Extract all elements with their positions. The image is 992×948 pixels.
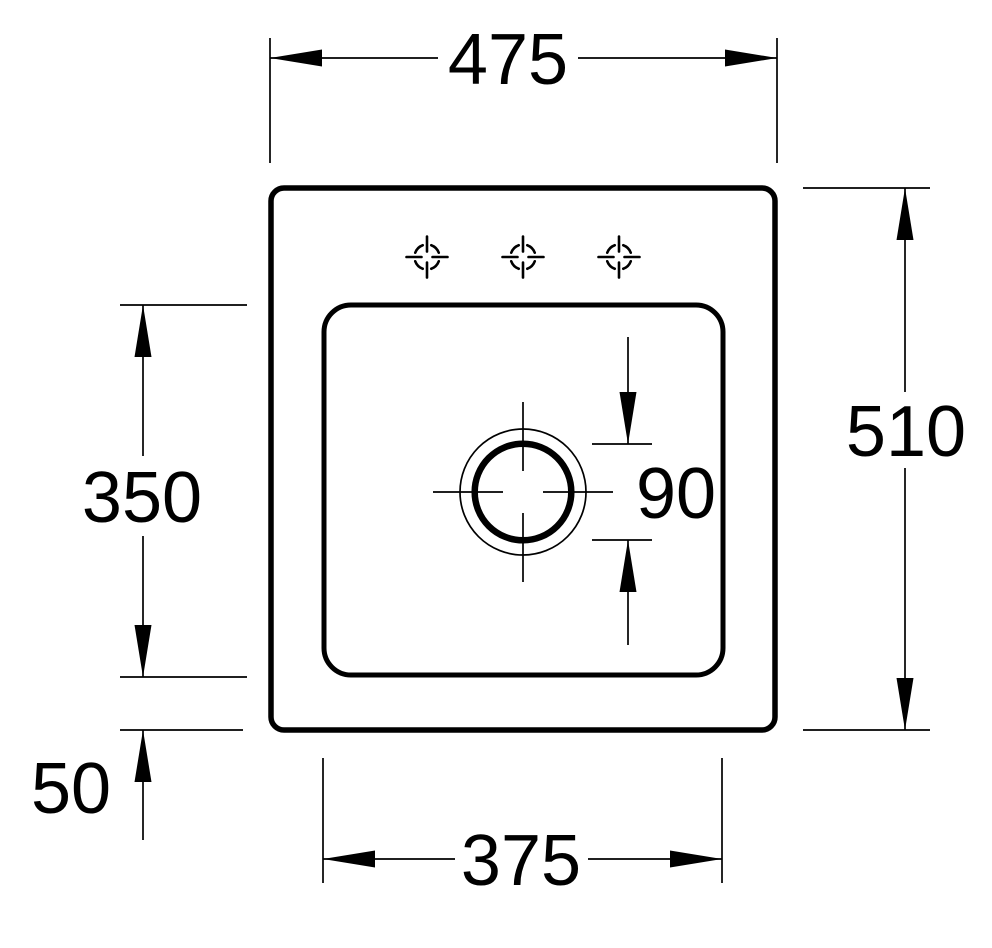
tap-hole-marker-icon [599,237,640,278]
tap-hole-markers [407,237,640,278]
arrowhead-down-icon [897,678,914,730]
drain [433,402,613,582]
arrowhead-left-icon [270,50,322,67]
dim-front-rim-offset-label: 50 [31,749,111,829]
tap-hole-marker-icon [407,237,448,278]
dim-overall-width-label: 475 [448,20,568,100]
arrowhead-right-icon [670,851,722,868]
technical-drawing-canvas: 475 510 350 50 [0,0,992,948]
arrowhead-up-icon [897,188,914,240]
arrowhead-up-icon [135,730,152,782]
arrowhead-down-icon [620,392,637,444]
dim-drain-diameter: 90 [592,337,716,645]
tap-hole-marker-icon [503,237,544,278]
dim-basin-depth-label: 350 [82,458,202,538]
drain-centerlines [433,402,613,582]
dim-front-rim-offset: 50 [31,730,243,840]
dim-overall-depth: 510 [803,188,966,730]
dim-overall-depth-label: 510 [846,392,966,472]
arrowhead-down-icon [135,625,152,677]
dim-basin-depth: 350 [82,305,247,677]
dim-drain-diameter-label: 90 [636,454,716,534]
dim-basin-width-label: 375 [461,821,581,901]
arrowhead-left-icon [323,851,375,868]
dim-basin-width: 375 [323,758,722,901]
arrowhead-right-icon [725,50,777,67]
arrowhead-up-icon [135,305,152,357]
arrowhead-up-icon [620,540,637,592]
sink-dimension-drawing: 475 510 350 50 [0,0,992,948]
dim-overall-width: 475 [270,20,777,163]
